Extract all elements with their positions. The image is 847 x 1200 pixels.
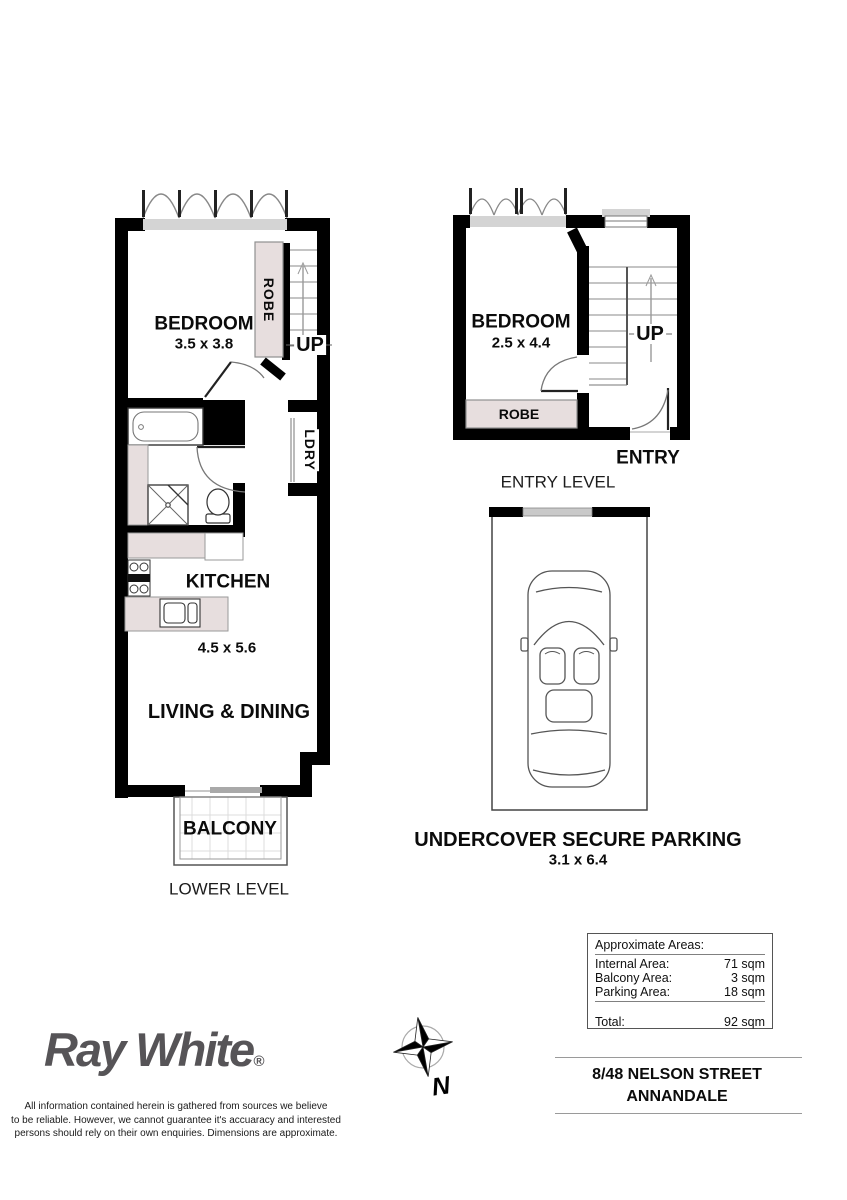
- entry-bedroom-dims: 2.5 x 4.4: [492, 336, 550, 351]
- disclaimer-line: to be reliable. However, we cannot guara…: [10, 1114, 342, 1128]
- ray-white-logo: Ray White®: [44, 1022, 264, 1077]
- table-row: Balcony Area: 3 sqm: [595, 971, 765, 985]
- entry-robe-label: ROBE: [499, 407, 539, 421]
- area-value: 71 sqm: [724, 957, 765, 971]
- kitchen-sink: [160, 599, 200, 627]
- entry-window: [602, 209, 650, 227]
- balcony-sliding-door: [185, 787, 262, 793]
- table-row: Parking Area: 18 sqm: [595, 985, 765, 999]
- lower-level-title: LOWER LEVEL: [169, 881, 289, 898]
- lower-bedroom-door: [205, 362, 264, 397]
- laundry-label: LDRY: [301, 429, 319, 471]
- parking-dims: 3.1 x 6.4: [549, 853, 607, 868]
- entry-door: [630, 388, 670, 432]
- kitchen-label: KITCHEN: [186, 573, 270, 592]
- lower-bedroom-dims: 3.5 x 3.8: [175, 337, 233, 352]
- area-label: Balcony Area:: [595, 971, 672, 985]
- table-separator: [595, 1001, 765, 1002]
- lower-level-plan: [115, 190, 332, 865]
- lower-up-label: UP: [294, 335, 326, 355]
- floor-plan-page: BEDROOM 3.5 x 3.8 ROBE UP LDRY KITCHEN 4…: [0, 0, 847, 1200]
- address-rule-bottom: [555, 1113, 802, 1114]
- total-value: 92 sqm: [724, 1015, 765, 1030]
- area-label: Internal Area:: [595, 957, 669, 971]
- entry-level-title: ENTRY LEVEL: [501, 474, 616, 491]
- toilet: [206, 489, 230, 523]
- disclaimer-line: All information contained herein is gath…: [10, 1100, 342, 1114]
- lower-french-doors: [142, 190, 288, 230]
- parking-title: UNDERCOVER SECURE PARKING: [414, 830, 741, 850]
- stove: [128, 560, 150, 596]
- entry-label: ENTRY: [616, 449, 680, 468]
- balcony-label: BALCONY: [183, 820, 277, 839]
- area-value: 3 sqm: [731, 971, 765, 985]
- brand-name: Ray White: [44, 1023, 253, 1076]
- address-rule-top: [555, 1057, 802, 1058]
- approximate-areas-table: Approximate Areas: Internal Area: 71 sqm…: [587, 933, 773, 1029]
- entry-french-doors: [469, 188, 567, 227]
- laundry-door: [291, 418, 294, 482]
- table-total-row: Total: 92 sqm: [595, 1015, 765, 1030]
- entry-bedroom-label: BEDROOM: [471, 313, 570, 332]
- living-dims: 4.5 x 5.6: [198, 641, 256, 656]
- table-row: Internal Area: 71 sqm: [595, 957, 765, 971]
- disclaimer-text: All information contained herein is gath…: [10, 1100, 342, 1141]
- bathroom-vanity: [128, 445, 148, 525]
- shower: [148, 485, 188, 525]
- address-line2: ANNANDALE: [626, 1088, 727, 1106]
- total-label: Total:: [595, 1015, 625, 1030]
- entry-bedroom-door: [541, 357, 578, 391]
- address-line1: 8/48 NELSON STREET: [592, 1066, 762, 1084]
- parking-space: [489, 507, 650, 810]
- area-value: 18 sqm: [724, 985, 765, 999]
- lower-bedroom-label: BEDROOM: [154, 315, 253, 334]
- lower-robe-label: ROBE: [262, 278, 276, 322]
- bathtub: [128, 408, 203, 445]
- registered-mark: ®: [253, 1053, 264, 1070]
- area-label: Parking Area:: [595, 985, 670, 999]
- entry-up-label: UP: [634, 324, 666, 344]
- areas-title: Approximate Areas:: [595, 938, 765, 955]
- compass-north-label: N: [430, 1071, 452, 1102]
- disclaimer-line: persons should rely on their own enquiri…: [10, 1127, 342, 1141]
- living-dining-label: LIVING & DINING: [148, 702, 310, 722]
